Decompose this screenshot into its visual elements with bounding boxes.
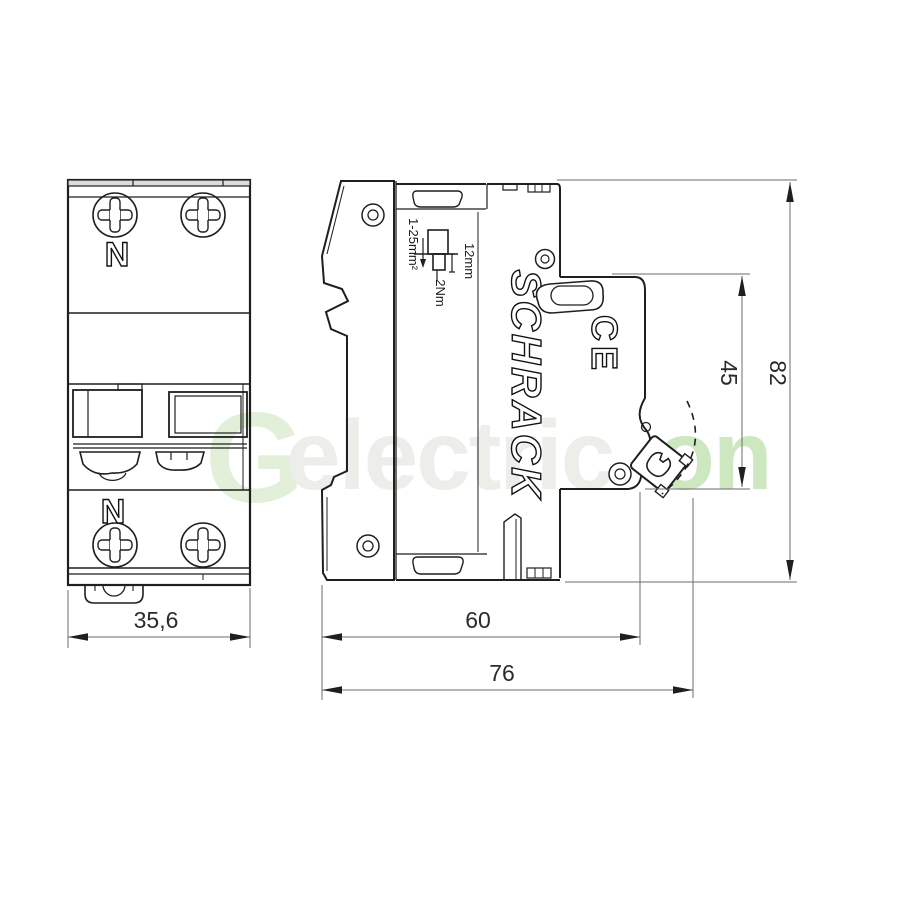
watermark-text: electric bbox=[286, 400, 613, 510]
rivet-bottom-icon bbox=[357, 535, 379, 557]
din-rail-plate bbox=[322, 181, 394, 580]
torque-label: 2Nm bbox=[433, 279, 448, 306]
dimension-35-6: 35,6 bbox=[68, 588, 250, 648]
dimension-82: 82 bbox=[557, 180, 797, 582]
din-clip-tab bbox=[85, 585, 143, 603]
dim-depth-value: 60 bbox=[465, 607, 491, 633]
screw-terminal-bottom-right-icon bbox=[181, 523, 225, 567]
dim-overall-height-value: 82 bbox=[765, 360, 791, 386]
screw-terminal-top-right-icon bbox=[181, 193, 225, 237]
dim-front-height-value: 45 bbox=[716, 360, 742, 386]
rivet-top-icon bbox=[362, 204, 384, 226]
ce-mark-label: CE bbox=[584, 315, 625, 375]
dim-overall-depth-value: 76 bbox=[489, 660, 515, 686]
dim-width-value: 35,6 bbox=[134, 607, 179, 633]
dimension-76: 76 bbox=[322, 498, 693, 698]
screw-terminal-bottom-left-icon bbox=[93, 523, 137, 567]
side-view: 1-25mm² 12mm 2Nm SCHRACK CE bbox=[322, 181, 695, 580]
dimension-60: 60 bbox=[322, 492, 640, 700]
strip-length-label: 12mm bbox=[462, 243, 477, 279]
wire-range-label: 1-25mm² bbox=[406, 218, 421, 271]
drawing-canvas: G electric on N bbox=[0, 0, 900, 900]
screw-terminal-top-left-icon bbox=[93, 193, 137, 237]
terminal-spec: 1-25mm² 12mm 2Nm bbox=[406, 218, 477, 307]
technical-drawing: G electric on N bbox=[0, 0, 900, 900]
rivet-front-icon bbox=[609, 463, 631, 485]
front-view: N N bbox=[68, 180, 250, 603]
neutral-label-top: N bbox=[105, 236, 130, 274]
